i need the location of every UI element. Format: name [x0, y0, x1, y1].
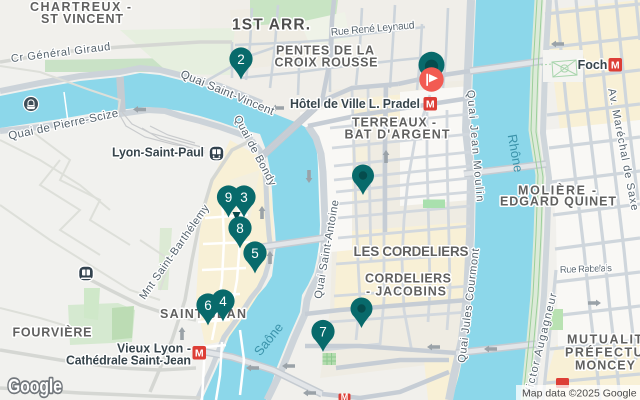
- svg-text:CROIX ROUSSE: CROIX ROUSSE: [275, 55, 378, 69]
- svg-text:- JACOBINS: - JACOBINS: [366, 285, 446, 299]
- svg-text:MONCEY: MONCEY: [575, 359, 636, 373]
- svg-text:Lyon-Saint-Paul: Lyon-Saint-Paul: [112, 146, 204, 160]
- svg-text:3: 3: [240, 190, 248, 205]
- svg-text:Map data ©2025 Google: Map data ©2025 Google: [522, 388, 637, 400]
- svg-text:PRÉFECTURE: PRÉFECTURE: [565, 345, 640, 360]
- svg-text:1ST ARR.: 1ST ARR.: [232, 17, 310, 34]
- svg-text:M: M: [426, 99, 435, 111]
- svg-text:M: M: [195, 348, 204, 360]
- svg-text:FOURVIÈRE: FOURVIÈRE: [13, 325, 92, 340]
- svg-text:EDGARD QUINET: EDGARD QUINET: [500, 195, 616, 209]
- svg-text:8: 8: [236, 221, 244, 236]
- svg-text:Foch: Foch: [578, 58, 608, 72]
- svg-text:4: 4: [219, 294, 227, 309]
- svg-text:9: 9: [225, 190, 233, 205]
- svg-text:Cathédrale Saint-Jean: Cathédrale Saint-Jean: [66, 354, 191, 368]
- svg-text:2: 2: [237, 52, 245, 67]
- svg-text:7: 7: [319, 325, 327, 340]
- svg-text:Rue Rabelais: Rue Rabelais: [560, 263, 613, 276]
- svg-text:Google: Google: [8, 376, 62, 398]
- svg-text:BAT D'ARGENT: BAT D'ARGENT: [345, 127, 450, 141]
- svg-text:Hôtel de Ville L. Pradel: Hôtel de Ville L. Pradel: [290, 97, 420, 111]
- svg-text:5: 5: [251, 246, 259, 261]
- svg-text:6: 6: [204, 298, 212, 313]
- svg-text:M: M: [341, 392, 349, 400]
- svg-text:ST VINCENT: ST VINCENT: [41, 12, 123, 26]
- svg-text:M: M: [611, 60, 620, 72]
- svg-text:CORDELIERS: CORDELIERS: [365, 272, 451, 286]
- svg-text:LES CORDELIERS: LES CORDELIERS: [354, 244, 469, 259]
